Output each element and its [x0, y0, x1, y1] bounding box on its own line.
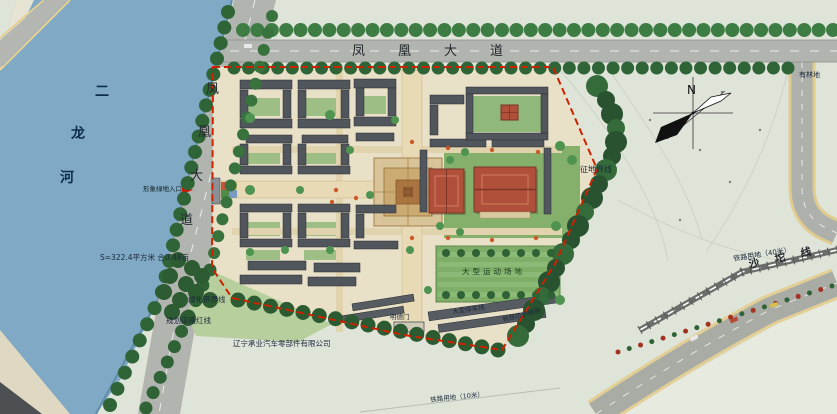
green-belt-label: 绿化带界线	[188, 296, 226, 304]
road-redline-label: 规划道路红线	[166, 317, 211, 325]
left-road-char: 凤	[206, 83, 219, 96]
top-road-label: 凤凰大道	[352, 45, 536, 58]
base-map-graphic	[0, 0, 837, 414]
land-boundary-label: 征地界线	[580, 166, 612, 174]
river-name-char: 龙	[71, 127, 85, 141]
area-note-label: S=322.4平方米 合0.48亩	[100, 254, 189, 262]
company-name-label: 辽宁承业汽车零部件有限公司	[233, 340, 331, 348]
sports-field-label: 大型运动场地	[462, 268, 525, 276]
river-name-char: 二	[95, 85, 109, 99]
river-name-char: 河	[60, 171, 74, 185]
left-road-char: 凰	[198, 126, 211, 139]
compass-label: N	[687, 84, 696, 96]
south-gate-label: 明德门	[390, 314, 410, 321]
site-plan-canvas: 凤凰大道 凤 凰 大 道 二 龙 河 N 征地界线 铁路用地（40米） 沙坨线 …	[0, 0, 837, 414]
wooded-land-label: 有林地	[799, 72, 820, 79]
left-road-char: 道	[180, 214, 193, 227]
left-road-char: 大	[190, 170, 203, 183]
entrance-label: 形象绿地入口	[143, 186, 182, 193]
